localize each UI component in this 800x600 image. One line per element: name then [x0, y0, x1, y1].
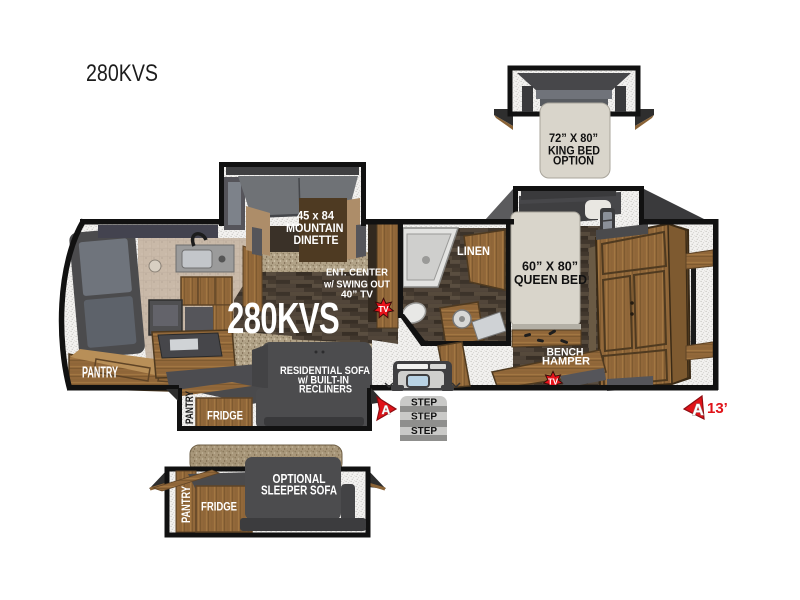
svg-text:A: A — [692, 402, 704, 419]
svg-text:SLEEPER SOFA: SLEEPER SOFA — [261, 484, 337, 498]
svg-text:STEP: STEP — [411, 398, 437, 409]
svg-text:FRIDGE: FRIDGE — [201, 500, 237, 514]
svg-text:280KVS: 280KVS — [227, 294, 339, 344]
svg-text:LINEN: LINEN — [457, 244, 490, 258]
svg-text:PANTRY: PANTRY — [82, 365, 118, 382]
svg-text:RECLINERS: RECLINERS — [299, 383, 352, 395]
svg-text:72” X 80”: 72” X 80” — [549, 133, 598, 145]
svg-text:PANTRY: PANTRY — [184, 391, 196, 424]
svg-text:STEP: STEP — [411, 412, 437, 423]
svg-text:DINETTE: DINETTE — [294, 233, 339, 247]
svg-text:OPTION: OPTION — [553, 156, 594, 168]
svg-text:QUEEN BED: QUEEN BED — [514, 272, 587, 287]
svg-text:FRIDGE: FRIDGE — [207, 409, 243, 423]
svg-text:HAMPER: HAMPER — [542, 356, 590, 368]
svg-text:STEP: STEP — [411, 426, 437, 437]
svg-text:280KVS: 280KVS — [86, 60, 158, 87]
svg-text:40” TV: 40” TV — [341, 289, 373, 301]
svg-text:13’: 13’ — [707, 400, 728, 417]
svg-text:TV: TV — [378, 305, 389, 314]
svg-text:A: A — [382, 403, 391, 417]
svg-text:ENT. CENTER: ENT. CENTER — [326, 267, 388, 279]
svg-text:PANTRY: PANTRY — [181, 486, 193, 523]
